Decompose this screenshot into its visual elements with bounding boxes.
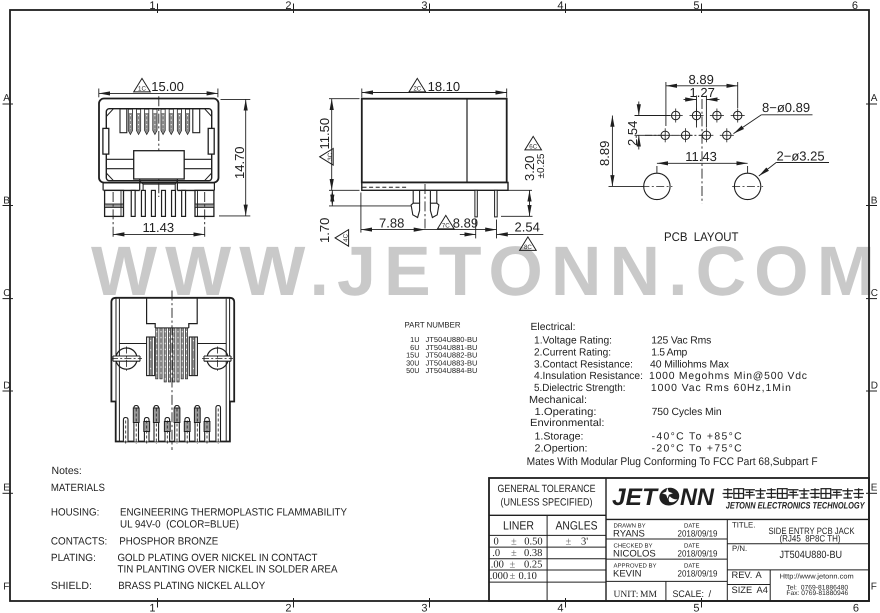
svg-text:PHOSPHOR BRONZE: PHOSPHOR BRONZE <box>119 535 218 547</box>
svg-text:ANGLES: ANGLES <box>556 518 598 532</box>
svg-text:REV.: REV. <box>732 570 753 580</box>
svg-text:-20°C To +75°C: -20°C To +75°C <box>652 443 742 454</box>
svg-text:2C: 2C <box>413 86 421 93</box>
svg-text:±0.25: ±0.25 <box>536 153 547 178</box>
svg-text:C: C <box>3 288 10 299</box>
svg-text:Http://www.jetonn.com: Http://www.jetonn.com <box>780 573 854 581</box>
svg-text:Fax: 0769-81880946: Fax: 0769-81880946 <box>786 590 848 597</box>
svg-text:15.00: 15.00 <box>151 79 184 94</box>
svg-text:B: B <box>871 196 878 207</box>
svg-text:.000: .000 <box>490 571 508 582</box>
svg-text:D: D <box>3 381 10 392</box>
svg-text:SIZE: SIZE <box>732 585 753 595</box>
svg-text:2.54: 2.54 <box>515 220 540 235</box>
svg-text:C: C <box>871 288 878 299</box>
svg-text:RYANS: RYANS <box>613 529 645 540</box>
svg-text:4C: 4C <box>342 233 349 241</box>
svg-text:HOUSING:: HOUSING: <box>51 506 99 518</box>
svg-text:1.70: 1.70 <box>317 218 332 243</box>
svg-text:8C: 8C <box>524 244 532 251</box>
svg-text:2018/09/19: 2018/09/19 <box>678 549 718 559</box>
svg-text:PCB LAYOUT: PCB LAYOUT <box>664 230 739 244</box>
svg-text:Notes:: Notes: <box>52 465 82 477</box>
svg-text:MM: MM <box>640 590 657 600</box>
svg-text:8−ø0.89: 8−ø0.89 <box>762 100 810 115</box>
svg-text:6: 6 <box>852 0 858 12</box>
svg-text:Mechanical:: Mechanical: <box>529 395 587 406</box>
svg-text:LINER: LINER <box>503 518 534 532</box>
svg-text:1.Operating:: 1.Operating: <box>535 407 597 418</box>
svg-text:KEVIN: KEVIN <box>613 569 642 580</box>
svg-text:E: E <box>3 483 10 494</box>
svg-text:1.27: 1.27 <box>690 85 715 100</box>
svg-text:±: ± <box>510 559 516 570</box>
svg-text:11.43: 11.43 <box>143 220 175 235</box>
svg-text:3.Contact Resistance:: 3.Contact Resistance: <box>534 359 633 370</box>
svg-text:CONTACTS:: CONTACTS: <box>51 535 107 547</box>
svg-text:JT504U880-BU: JT504U880-BU <box>780 549 843 561</box>
svg-text:SHIELD:: SHIELD: <box>51 580 92 592</box>
svg-text:3C: 3C <box>327 152 334 160</box>
svg-text:A: A <box>756 570 763 580</box>
svg-text:PART NUMBER: PART NUMBER <box>405 320 461 329</box>
svg-text:(RJ45 8P8C TH): (RJ45 8P8C TH) <box>780 533 841 543</box>
svg-text:2: 2 <box>285 0 291 12</box>
svg-text:1000 Vac Rms 60Hz,1Min: 1000 Vac Rms 60Hz,1Min <box>651 383 791 394</box>
svg-text:1.Voltage Rating:: 1.Voltage Rating: <box>534 336 612 347</box>
svg-text:A: A <box>871 93 878 104</box>
svg-text:11.50: 11.50 <box>317 118 332 150</box>
svg-text:Electrical:: Electrical: <box>531 322 576 333</box>
svg-text:/: / <box>709 589 712 600</box>
svg-text:0.38: 0.38 <box>524 548 542 559</box>
svg-text:2018/09/19: 2018/09/19 <box>678 569 718 579</box>
svg-text:F: F <box>3 582 9 593</box>
svg-text:SCALE:: SCALE: <box>673 589 705 600</box>
svg-text:40 Milliohms Max: 40 Milliohms Max <box>650 359 730 370</box>
svg-text:E: E <box>871 483 878 494</box>
svg-text:8.89: 8.89 <box>597 141 612 166</box>
svg-text:2−ø3.25: 2−ø3.25 <box>777 148 825 163</box>
svg-text:1: 1 <box>149 0 155 12</box>
svg-text:±: ± <box>510 571 516 582</box>
svg-text:2.54: 2.54 <box>625 121 640 146</box>
svg-text:NN: NN <box>680 484 715 511</box>
svg-text:4: 4 <box>557 603 563 613</box>
svg-text:TIN PLANTING OVER NICKEL IN SO: TIN PLANTING OVER NICKEL IN SOLDER AREA <box>118 564 338 576</box>
svg-text:6C: 6C <box>529 144 537 151</box>
svg-text:18.10: 18.10 <box>428 79 461 94</box>
svg-text:PLATING:: PLATING: <box>51 552 96 564</box>
svg-text:14.70: 14.70 <box>232 146 247 179</box>
svg-text:Environmental:: Environmental: <box>530 418 605 429</box>
svg-text:2018/09/19: 2018/09/19 <box>678 529 718 539</box>
svg-text:1C: 1C <box>138 86 146 93</box>
svg-text:D: D <box>871 381 878 392</box>
svg-text:Mates With Modular Plug Confor: Mates With Modular Plug Conforming To FC… <box>527 456 818 468</box>
svg-text:4: 4 <box>557 0 563 12</box>
svg-text:F: F <box>871 582 877 593</box>
svg-text:0.10: 0.10 <box>519 571 537 582</box>
svg-text:(UNLESS SPECIFIED): (UNLESS SPECIFIED) <box>501 497 593 509</box>
svg-text:1: 1 <box>149 603 155 613</box>
svg-text:JET: JET <box>612 484 659 511</box>
svg-text:UL 94V-0 (COLOR=BLUE): UL 94V-0 (COLOR=BLUE) <box>120 518 239 530</box>
svg-text:50U: 50U <box>406 366 419 375</box>
svg-text:±: ± <box>511 548 517 559</box>
svg-text:3: 3 <box>421 603 427 613</box>
svg-text:ENGINEERING THERMOPLASTIC FLAM: ENGINEERING THERMOPLASTIC FLAMMABILITY <box>120 506 347 518</box>
svg-text:3: 3 <box>421 0 427 12</box>
svg-text:7C: 7C <box>442 223 450 230</box>
svg-text:MATERIALS: MATERIALS <box>51 482 105 494</box>
svg-text:JT504U884-BU: JT504U884-BU <box>426 366 478 375</box>
svg-text:8.89: 8.89 <box>453 216 478 231</box>
svg-text:11.43: 11.43 <box>685 149 717 164</box>
svg-text:0: 0 <box>494 536 499 547</box>
svg-text:5: 5 <box>693 603 699 613</box>
svg-text:.00: .00 <box>491 559 504 570</box>
svg-text:TITLE.: TITLE. <box>732 521 755 530</box>
svg-text:1000 Megohms Min@500 Vdc: 1000 Megohms Min@500 Vdc <box>649 371 807 382</box>
svg-text:7.88: 7.88 <box>379 216 404 231</box>
svg-text:1.5 Amp: 1.5 Amp <box>651 348 687 359</box>
svg-text:3': 3' <box>581 536 588 547</box>
svg-text:750 Cycles Min: 750 Cycles Min <box>652 407 722 418</box>
svg-text:0.50: 0.50 <box>524 536 542 547</box>
svg-text:125 Vac Rms: 125 Vac Rms <box>651 336 711 347</box>
svg-text:0.25: 0.25 <box>524 559 542 570</box>
svg-text:A: A <box>3 93 10 104</box>
svg-text:GOLD PLATING OVER NICKEL IN CO: GOLD PLATING OVER NICKEL IN CONTACT <box>118 552 319 564</box>
svg-text:±: ± <box>511 536 517 547</box>
svg-text:5: 5 <box>693 0 699 12</box>
svg-text:2.Opertion:: 2.Opertion: <box>535 443 588 454</box>
svg-text:4.Insulation Resistance:: 4.Insulation Resistance: <box>534 371 643 382</box>
svg-text:P/N.: P/N. <box>732 544 747 553</box>
svg-text:-40°C To +85°C: -40°C To +85°C <box>652 432 742 443</box>
svg-text:1.Storage:: 1.Storage: <box>535 432 584 443</box>
svg-text:.0: .0 <box>492 548 500 559</box>
svg-text:BRASS PLATING NICKEL ALLOY: BRASS PLATING NICKEL ALLOY <box>118 580 265 592</box>
svg-text:JETONN ELECTRONICS TECHNOLOGY: JETONN ELECTRONICS TECHNOLOGY <box>726 500 865 510</box>
svg-text:2.Current Rating:: 2.Current Rating: <box>534 348 611 359</box>
svg-text:2: 2 <box>285 603 291 613</box>
svg-text:6: 6 <box>853 603 859 613</box>
svg-text:A4: A4 <box>757 585 768 595</box>
svg-text:±: ± <box>566 536 572 547</box>
svg-text:5.Dielectric Strength:: 5.Dielectric Strength: <box>534 383 626 394</box>
svg-text:GENERAL TOLERANCE: GENERAL TOLERANCE <box>498 483 596 495</box>
svg-text:UNIT:: UNIT: <box>614 590 639 600</box>
svg-text:B: B <box>3 196 10 207</box>
svg-text:NICOLOS: NICOLOS <box>613 549 656 560</box>
